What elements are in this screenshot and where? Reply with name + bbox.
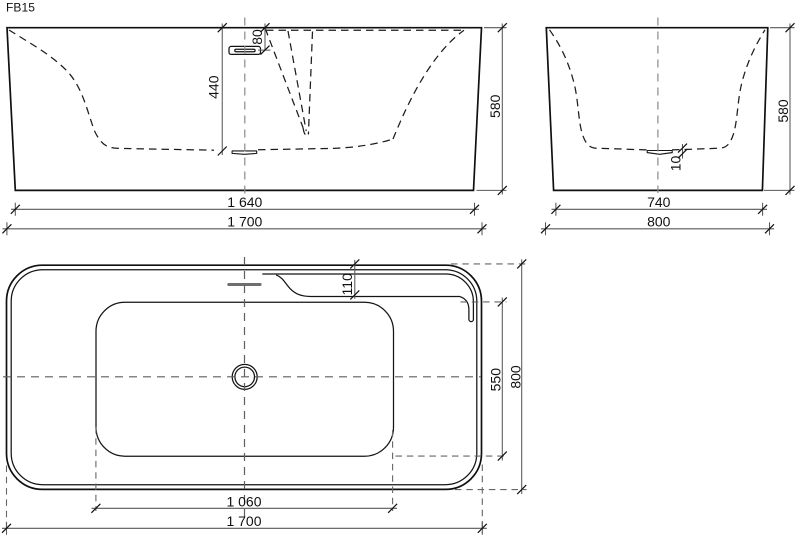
svg-text:580: 580 (487, 94, 503, 118)
svg-text:580: 580 (775, 99, 791, 123)
svg-text:10: 10 (668, 156, 684, 172)
svg-text:80: 80 (249, 29, 265, 45)
svg-text:1 700: 1 700 (227, 214, 262, 230)
svg-text:1 640: 1 640 (227, 194, 262, 210)
svg-text:550: 550 (488, 368, 504, 392)
svg-text:440: 440 (206, 75, 222, 99)
svg-text:1 060: 1 060 (226, 493, 261, 509)
svg-text:800: 800 (647, 214, 671, 230)
svg-text:FB15: FB15 (6, 1, 35, 15)
svg-text:740: 740 (647, 194, 671, 210)
svg-text:1 700: 1 700 (226, 513, 261, 529)
svg-text:110: 110 (339, 273, 355, 296)
svg-text:800: 800 (508, 365, 524, 389)
